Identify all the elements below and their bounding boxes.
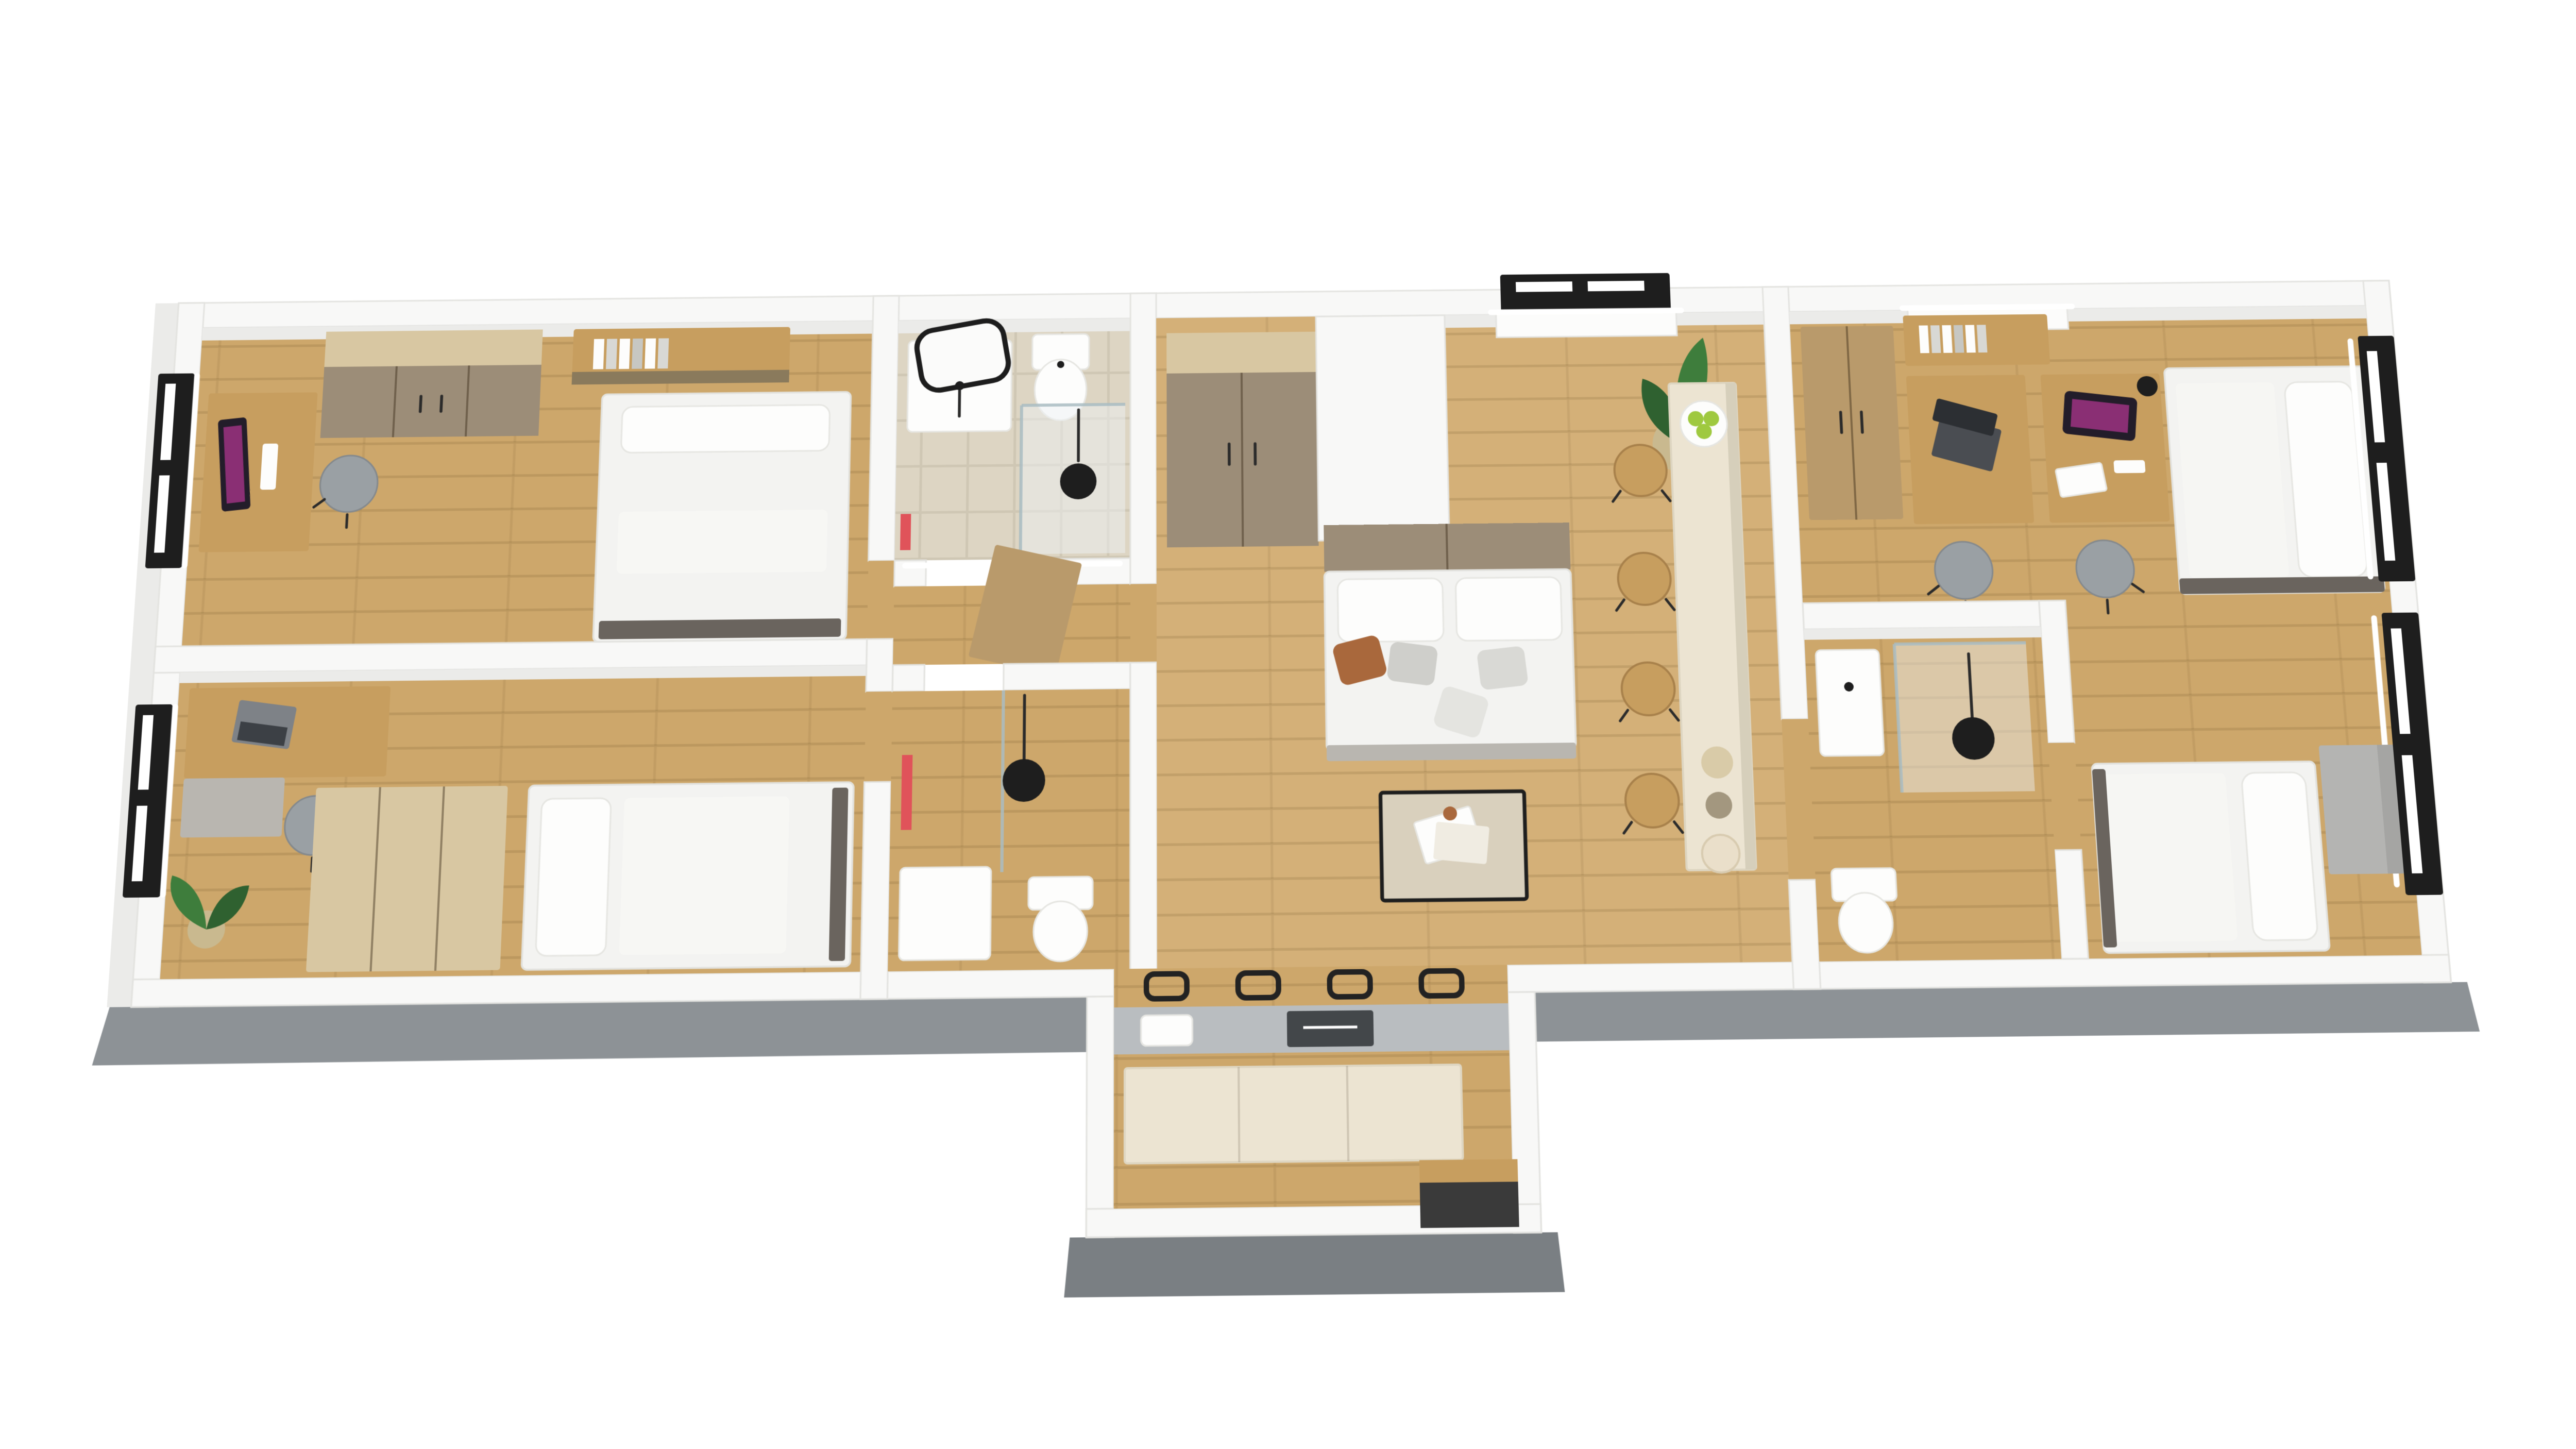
wardrobe	[1800, 326, 1903, 520]
isometric-tilt-wrapper: Bedroom 1 (top left): wardrobe, wall she…	[0, 5, 2576, 1449]
cooktop	[1287, 1010, 1374, 1047]
magazine	[1433, 821, 1489, 864]
pillow	[621, 405, 830, 453]
wardrobe	[306, 786, 508, 972]
door-threshold	[867, 561, 895, 639]
bookshelf	[1903, 314, 2050, 366]
desk-monitor	[2040, 374, 2170, 523]
kitchen-island	[1125, 1065, 1463, 1164]
gray-pillow	[1477, 646, 1529, 690]
gray-counter-return	[180, 778, 285, 838]
room-bedroom-1: Bedroom 1 (top left): wardrobe, wall she…	[140, 321, 873, 647]
window-roller-blind	[1490, 273, 1682, 338]
room-hall-1: Hallway with wooden sliding door	[893, 543, 1130, 678]
sink	[1141, 1015, 1193, 1046]
red-accent-strip	[901, 755, 912, 830]
door-threshold	[1130, 584, 1157, 663]
duvet	[2176, 382, 2290, 578]
fruit-bowl	[1680, 401, 1728, 447]
red-accent-strip	[900, 514, 911, 550]
outer-skirt-bottom-left	[92, 997, 1114, 1066]
kitchen-counter	[1114, 1003, 1509, 1054]
mirror	[914, 318, 1011, 393]
render-canvas: Bedroom 1 (top left): wardrobe, wall she…	[0, 0, 2576, 1449]
keyboard	[260, 444, 279, 490]
shower-tray	[899, 867, 991, 960]
bed-base	[599, 618, 841, 639]
entry-threshold	[1419, 1159, 1518, 1183]
room-kitchen: Kitchen (bottom center): counter with si…	[1114, 965, 1519, 1231]
room-bathroom-1: Bathroom 1 (top center): vanity sink wit…	[895, 316, 1131, 561]
single-bed	[2092, 762, 2330, 953]
wall-stub	[1316, 315, 1449, 541]
wardrobe	[1166, 332, 1318, 548]
desk	[184, 686, 391, 779]
papers	[2055, 463, 2107, 498]
folded-blanket	[617, 510, 828, 574]
wall-shelf-books	[572, 327, 791, 385]
cushion	[1337, 578, 1444, 642]
pillow	[2241, 772, 2318, 940]
desk	[198, 392, 317, 552]
entry: Entrance (bottom center): entry door wit…	[1419, 1159, 1519, 1228]
wardrobe	[320, 329, 543, 438]
door-threshold	[865, 692, 893, 782]
pillow	[536, 798, 612, 956]
coffee-table	[1380, 791, 1527, 900]
room-bathroom-3: Bathroom 3 (center right): vanity sink, …	[1804, 627, 2062, 962]
bed-base	[2179, 576, 2385, 594]
room-bedroom-2: Bedroom 2 (bottom left): desk with lapto…	[117, 676, 867, 980]
cushion	[1455, 577, 1562, 641]
floorplan-render: Bedroom 1 (top left): wardrobe, wall she…	[0, 5, 2576, 1449]
vanity-sink	[907, 318, 1012, 432]
duvet	[2103, 773, 2238, 942]
entry-door	[1420, 1182, 1519, 1228]
room-bathroom-2: Bathroom 2 (bottom center): walk-in show…	[888, 689, 1130, 971]
duvet	[619, 796, 789, 955]
single-bed	[593, 392, 851, 642]
single-bed	[521, 782, 854, 970]
wall-bath-living	[1130, 293, 1157, 996]
wall-protrusion-west	[1086, 997, 1114, 1237]
desk-laptop	[1906, 375, 2035, 524]
small-keyboard	[2113, 460, 2145, 473]
vanity-sink	[1816, 650, 1884, 756]
gray-pillow	[1386, 641, 1438, 686]
walk-in-shower	[1021, 405, 1125, 554]
wall-bathroom-2-north	[892, 663, 1130, 692]
sofa	[1324, 523, 1576, 761]
single-bed	[2164, 366, 2385, 594]
walk-in-shower	[1894, 643, 2035, 793]
monitor-screen	[224, 425, 245, 503]
sofa-base	[1327, 743, 1577, 761]
bench	[2318, 745, 2404, 874]
outer-skirt-protrusion	[1064, 1232, 1565, 1298]
